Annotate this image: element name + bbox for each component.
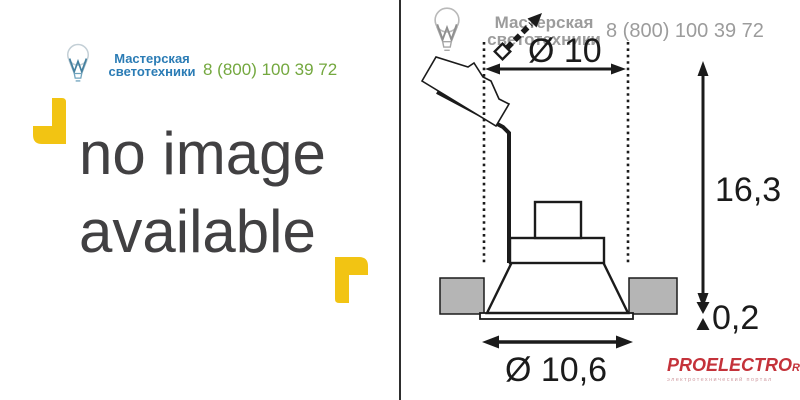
dim-flange-thickness-label: 0,2 [712,299,759,337]
proelectro-logo: PROELECTRORU электротехнический портал [667,355,800,383]
proelectro-logo-title: PROELECTRO [667,355,792,375]
panel-divider [399,0,401,400]
proelectro-logo-tagline: электротехнический портал [667,377,800,383]
dim-height-label: 16,3 [715,171,781,209]
dim-bottom-diameter-label: Ø 10,6 [505,351,607,389]
dim-bottom-diameter: Ø 10,6 [482,336,633,390]
proelectro-logo-tld: RU [792,362,800,374]
product-image-canvas: Мастерская светотехники 8 (800) 100 39 7… [0,0,800,400]
dim-height: 16,3 [698,61,782,308]
fixture-body [480,202,633,319]
dim-top-diameter-label: Ø 10 [528,32,602,70]
dim-flange-thickness: 0,2 [697,299,760,337]
